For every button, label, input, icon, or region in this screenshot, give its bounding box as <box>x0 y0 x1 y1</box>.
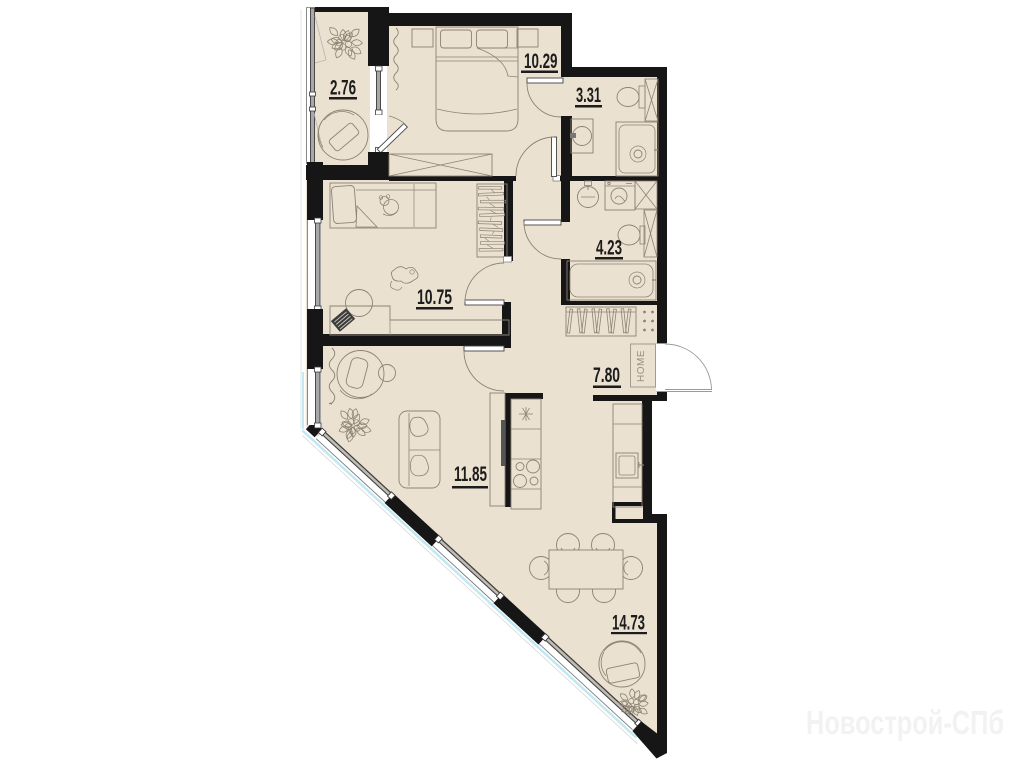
svg-text:7.80: 7.80 <box>593 364 620 387</box>
svg-text:3.31: 3.31 <box>576 84 601 107</box>
svg-text:HOME: HOME <box>636 350 647 382</box>
svg-text:10.75: 10.75 <box>417 286 452 309</box>
svg-text:14.73: 14.73 <box>612 612 645 635</box>
svg-text:10.29: 10.29 <box>524 50 558 73</box>
svg-text:2.76: 2.76 <box>330 77 356 100</box>
svg-text:Новострой-СПб: Новострой-СПб <box>806 704 1004 741</box>
svg-text:11.85: 11.85 <box>454 463 487 486</box>
svg-text:4.23: 4.23 <box>596 237 622 260</box>
